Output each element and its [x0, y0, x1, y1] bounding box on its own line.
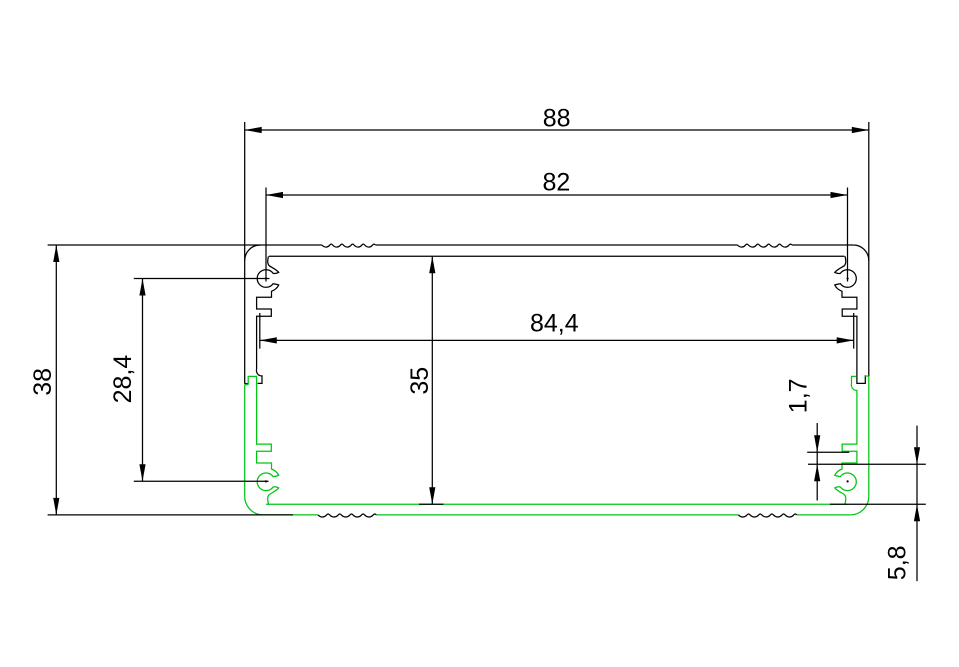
svg-text:88: 88	[543, 105, 571, 133]
svg-text:82: 82	[542, 168, 570, 196]
svg-text:28,4: 28,4	[109, 355, 137, 404]
svg-text:38: 38	[29, 368, 57, 396]
svg-text:84,4: 84,4	[530, 310, 579, 338]
svg-text:1,7: 1,7	[785, 378, 813, 413]
svg-text:35: 35	[406, 367, 434, 395]
svg-text:5,8: 5,8	[884, 545, 912, 580]
